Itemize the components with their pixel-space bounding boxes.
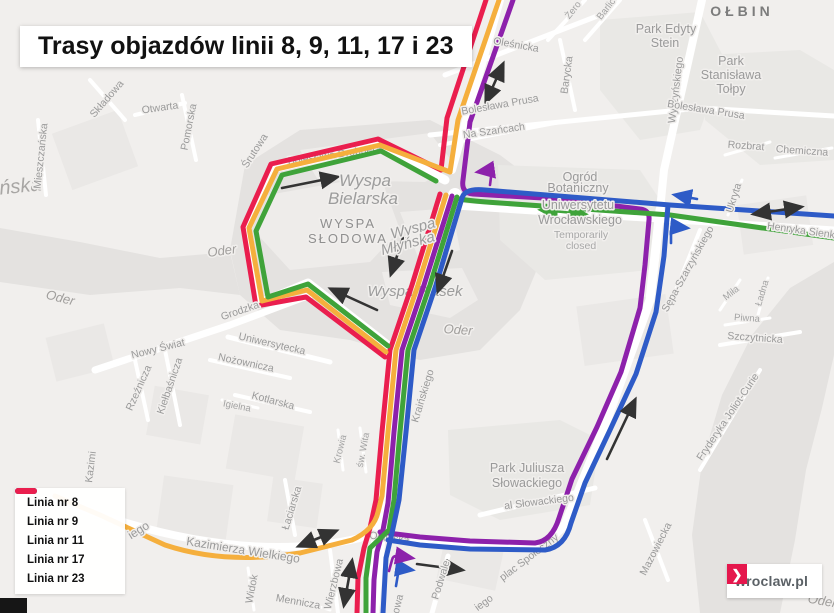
- logo-chevron-icon: ❯: [727, 564, 747, 584]
- corner-block: [0, 598, 27, 613]
- map-image: Bolesława Drobnera Oławska plac Społeczn…: [0, 0, 834, 613]
- legend-label-linia-23: Linia nr 23: [27, 573, 85, 585]
- street-label-rozbrat: Rozbrat: [727, 139, 765, 154]
- svg-text:❯: ❯: [732, 567, 743, 583]
- river-label-oder-3: Oder: [443, 321, 474, 338]
- map-title-text: Trasy objazdów linii 8, 9, 11, 17 i 23: [38, 32, 453, 61]
- street-label-sepa-szarzynskiego: Sępa-Szarzyńskiego: [659, 224, 716, 314]
- street-label-uniwersytecka: Uniwersytecka: [237, 330, 306, 357]
- map-title: Trasy objazdów linii 8, 9, 11, 17 i 23: [20, 26, 472, 67]
- street-label-barlickiego-fragment: Barlic: [595, 0, 618, 22]
- street-label-mazowiecka: Mazowiecka: [638, 520, 675, 577]
- status-label-closed-2: closed: [566, 240, 597, 252]
- street-label-widok: Widok: [243, 573, 260, 605]
- arrow-blue-west: [675, 195, 697, 199]
- street-label-plac-spoleczny: plac Społeczny: [497, 531, 561, 584]
- legend-item-linia-9: Linia nr 9: [27, 516, 125, 528]
- legend-label-linia-8: Linia nr 8: [27, 497, 78, 509]
- legend-label-linia-9: Linia nr 9: [27, 516, 78, 528]
- legend-item-linia-17: Linia nr 17: [27, 554, 125, 566]
- street-label-wierzbowa: Wierzbowa: [322, 557, 346, 610]
- park-label-ogrod-1: Ogród: [563, 170, 598, 184]
- street-label-piwna: Piwna: [734, 312, 761, 325]
- street-label-nozownicza: Nożownicza: [217, 351, 275, 375]
- legend-item-linia-23: Linia nr 23: [27, 573, 125, 585]
- island-label-bielarska-1: Wyspa: [339, 171, 391, 190]
- arrow-blue-olawska: [396, 569, 412, 586]
- legend-label-linia-17: Linia nr 17: [27, 554, 85, 566]
- island-label-slodowa-2: SŁODOWA: [308, 231, 388, 246]
- park-label-edyty-1: Park Edyty: [636, 22, 697, 36]
- legend-label-linia-11: Linia nr 11: [27, 535, 84, 547]
- street-label-kazimierza-wielkiego: Kazimierza Wielkiego: [185, 534, 301, 566]
- park-label-tolpy-3: Tołpy: [716, 82, 746, 96]
- legend-item-linia-8: Linia nr 8: [27, 497, 125, 509]
- park-label-slowackiego-2: Słowackiego: [492, 476, 562, 490]
- park-label-slowackiego-1: Park Juliusza: [490, 461, 564, 475]
- island-label-slodowa-1: WYSPA: [320, 216, 376, 231]
- arrow-blue-bend-east: [671, 227, 687, 243]
- street-label-barycka: Barycka: [558, 55, 575, 94]
- street-label-mila: Miła: [721, 283, 742, 303]
- street-label-otwarta: Otwarta: [141, 99, 179, 116]
- street-label-igielna: Igielna: [222, 398, 252, 414]
- park-label-tolpy-2: Stanisława: [701, 68, 761, 82]
- street-label-kazimierza-fragment: Kazimi: [83, 451, 99, 484]
- street-label-owa-fragment: owa: [390, 593, 406, 613]
- street-label-iego-fragment-2: iego: [472, 592, 495, 613]
- street-label-krowia: Krowia: [332, 433, 350, 465]
- street-label-pomorska: Pomorska: [179, 102, 200, 151]
- park-label-ogrod-3: Uniwersytetu: [542, 198, 614, 212]
- wroclaw-pl-logo: ❯ wroclaw.pl: [727, 564, 822, 598]
- legend-item-linia-11: Linia nr 11: [27, 535, 125, 547]
- island-label-bielarska-2: Bielarska: [328, 189, 398, 208]
- street-label-ladna: Ładna: [753, 278, 771, 307]
- detour-map: Bolesława Drobnera Oławska plac Społeczn…: [0, 0, 834, 613]
- park-label-edyty-2: Stein: [651, 36, 680, 50]
- district-label-olbin: OŁBIN: [710, 3, 774, 19]
- park-label-tolpy-1: Park: [718, 54, 744, 68]
- legend-swatch-linia-23: [15, 488, 37, 494]
- legend: Linia nr 8 Linia nr 9 Linia nr 11 Linia …: [15, 488, 125, 594]
- street-label-mieszczanska: Mieszczańska: [32, 122, 51, 189]
- arrow-wierzbowa-both: [344, 561, 352, 605]
- park-label-ogrod-4: Wrocławskiego: [538, 213, 622, 227]
- street-label-mennicza: Mennicza: [275, 592, 321, 612]
- street-label-sw-wita: św. Wita: [355, 431, 373, 469]
